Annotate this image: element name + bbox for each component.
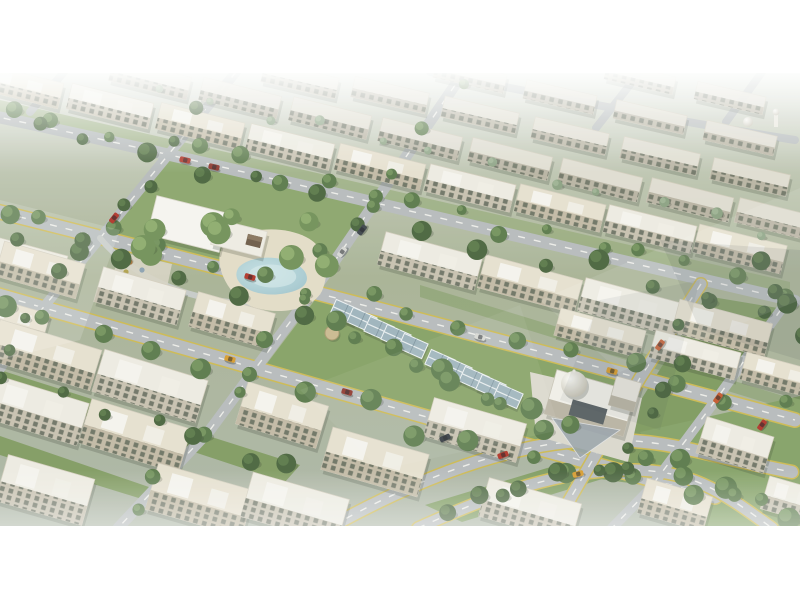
letterbox-bottom bbox=[0, 526, 800, 600]
aerial-masterplan-render bbox=[0, 0, 800, 600]
letterbox-top bbox=[0, 0, 800, 73]
haze-overlay bbox=[0, 73, 800, 526]
compound-aerial-view bbox=[0, 0, 800, 600]
